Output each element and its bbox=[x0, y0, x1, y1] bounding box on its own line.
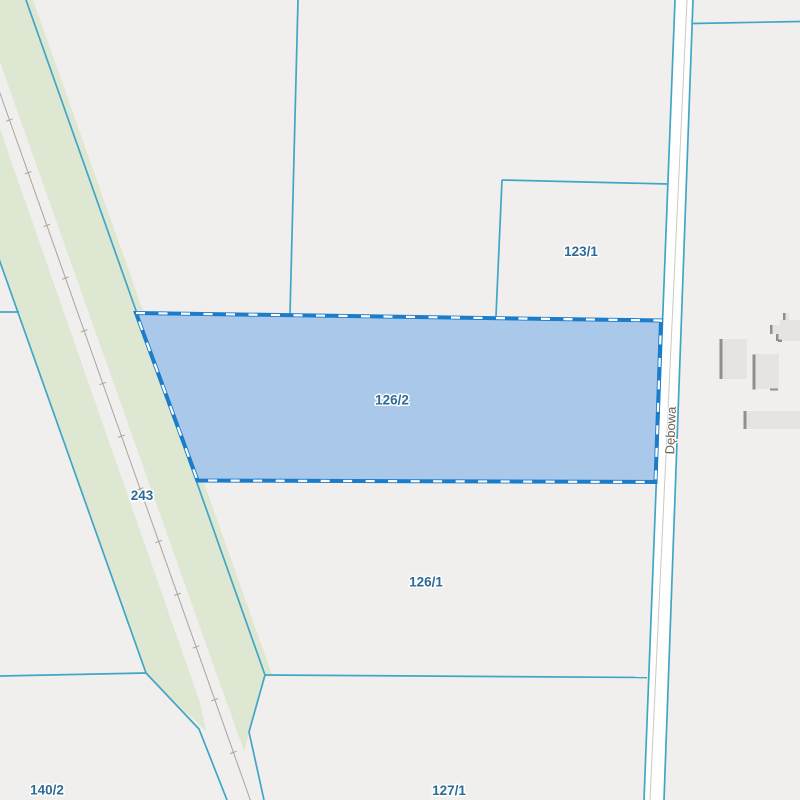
svg-text:127/1: 127/1 bbox=[432, 783, 466, 798]
svg-text:140/2: 140/2 bbox=[30, 783, 64, 798]
svg-text:126/2: 126/2 bbox=[375, 392, 409, 407]
svg-text:123/1: 123/1 bbox=[564, 244, 598, 259]
svg-text:126/1: 126/1 bbox=[409, 575, 443, 590]
svg-text:243: 243 bbox=[131, 488, 154, 503]
svg-text:Dębowa: Dębowa bbox=[662, 406, 679, 455]
